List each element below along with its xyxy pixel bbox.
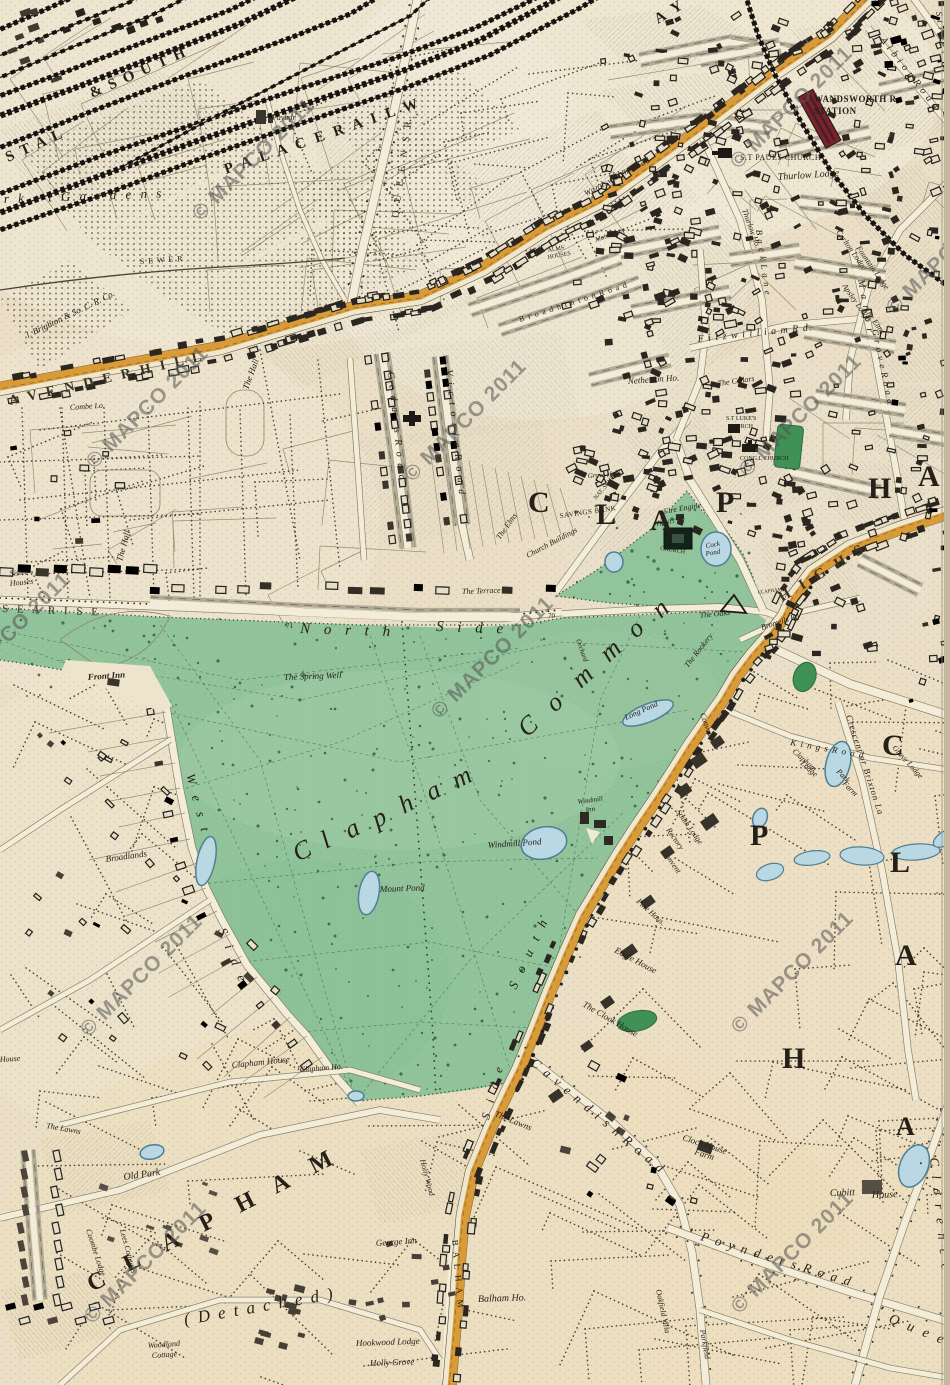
svg-text:71: 71 xyxy=(286,622,294,630)
svg-text:House: House xyxy=(0,1054,21,1065)
svg-text:The Terrace: The Terrace xyxy=(462,586,501,596)
svg-text:C: C xyxy=(528,486,550,519)
svg-text:H: H xyxy=(868,472,891,505)
svg-text:Holly Grove: Holly Grove xyxy=(369,1356,415,1368)
svg-text:Balham Ho.: Balham Ho. xyxy=(478,1292,527,1305)
svg-text:H: H xyxy=(782,1042,805,1075)
svg-text:The Spring Well: The Spring Well xyxy=(284,670,342,682)
svg-text:Cottage: Cottage xyxy=(152,1349,178,1360)
svg-text:House: House xyxy=(871,1189,898,1201)
svg-text:L: L xyxy=(890,846,910,879)
svg-text:N o r t h: N o r t h xyxy=(299,621,396,640)
svg-text:A: A xyxy=(895,939,917,972)
svg-text:A: A xyxy=(896,1112,915,1141)
svg-text:Mount Pond: Mount Pond xyxy=(379,882,426,894)
svg-text:Inn: Inn xyxy=(584,805,596,814)
svg-text:P: P xyxy=(716,486,734,519)
svg-text:P: P xyxy=(750,819,768,852)
svg-text:CHURCH: CHURCH xyxy=(728,424,754,430)
svg-text:WANDSWORTH R.: WANDSWORTH R. xyxy=(814,94,899,104)
svg-text:S.T LUKE'S: S.T LUKE'S xyxy=(726,416,756,422)
svg-text:STATION: STATION xyxy=(814,106,857,116)
svg-text:A: A xyxy=(918,460,940,493)
